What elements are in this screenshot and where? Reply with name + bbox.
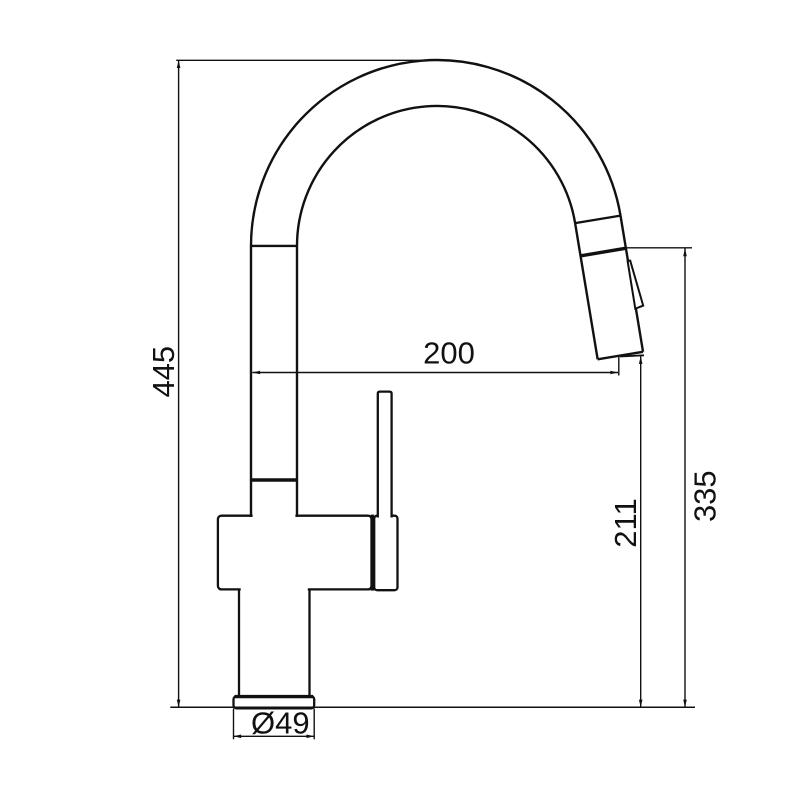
svg-text:445: 445 [146, 346, 181, 398]
svg-text:Ø49: Ø49 [251, 706, 310, 741]
svg-text:211: 211 [608, 498, 643, 547]
svg-text:200: 200 [423, 336, 475, 371]
svg-text:335: 335 [688, 470, 723, 522]
